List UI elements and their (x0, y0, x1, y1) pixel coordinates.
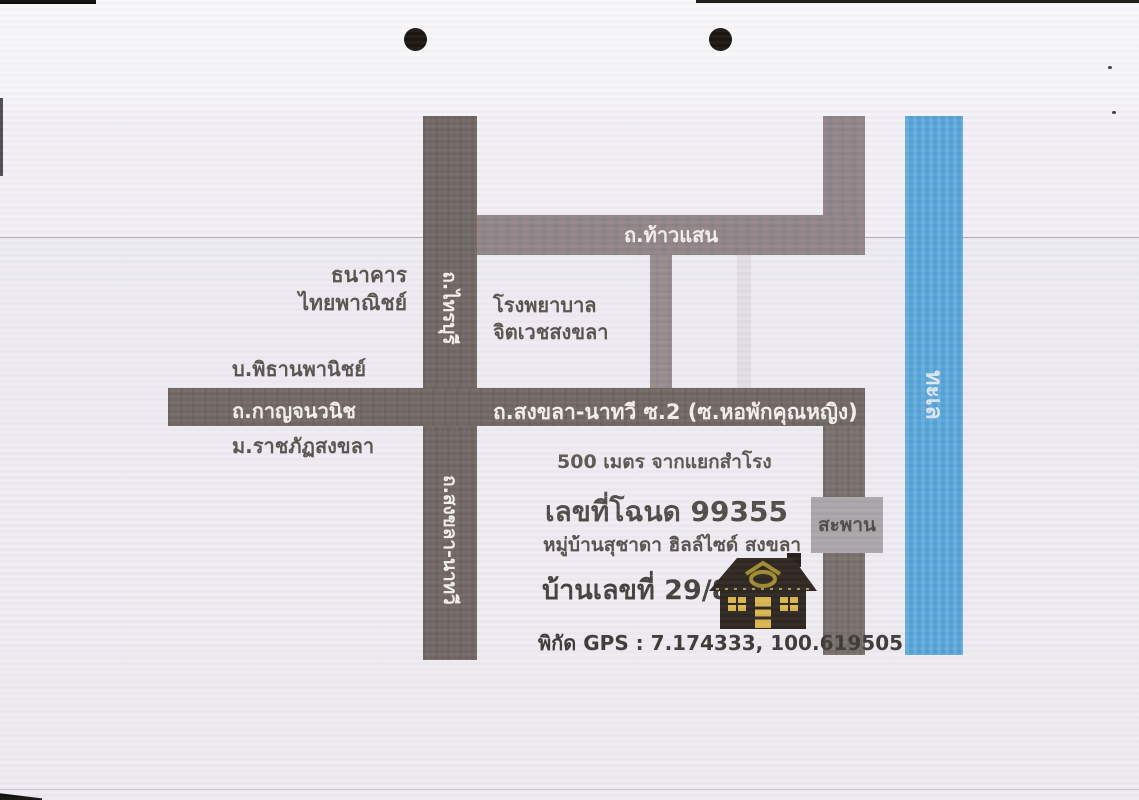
scan-edge-bar-right (696, 0, 1139, 3)
sea-label: ทะเล (916, 370, 952, 419)
hole-punch-dot (709, 28, 732, 51)
scan-speck (1112, 111, 1116, 114)
scan-edge-mark (0, 98, 3, 176)
scan-edge-bar-left (0, 0, 96, 4)
road-songkhla-nathawi-vertical-label-wrap: ถ.สงขลา-นาทวี (423, 420, 477, 660)
sea-label-wrap: ทะเล (905, 310, 963, 480)
bank-label-line1: ธนาคาร (270, 261, 407, 289)
hospital-label: โรงพยาบาล จิตเวชสงขลา (493, 292, 608, 346)
distance-note: 500 เมตร จากแยกสำโรง (557, 450, 772, 475)
road-kanchanavanich-label: ถ.กาญจนวนิช (232, 395, 356, 427)
hospital-label-line2: จิตเวชสงขลา (493, 319, 608, 346)
university-label: ม.ราชภัฏสงขลา (232, 433, 374, 460)
scan-speck (1108, 66, 1112, 69)
fold-line (0, 789, 1139, 790)
road-saiburi-label-wrap: ถ.ไทรบุรี (423, 248, 477, 368)
hospital-label-line1: โรงพยาบาล (493, 292, 608, 319)
road-songkhla-nathawi-soi2-label: ถ.สงขลา-นาทวี ซ.2 (ซ.หอพักคุณหญิง) (493, 396, 858, 429)
road-thaosaen-label: ถ.ท้าวแสน (624, 219, 718, 251)
road-saiburi-label: ถ.ไทรบุรี (435, 271, 465, 344)
bank-label: ธนาคาร ไทยพาณิชย์ (270, 261, 407, 317)
road-thaosaen-label-wrap: ถ.ท้าวแสน (477, 215, 865, 255)
scan-corner-artifact (0, 792, 42, 800)
scanned-map-page: ทะเล ถ.ท้าวแสน ถ.ไทรบุรี ถ.สงขลา-นาทวี ถ… (0, 0, 1139, 800)
road-topright-vertical (823, 116, 865, 216)
house-icon (708, 552, 818, 632)
deed-number: เลขที่โฉนด 99355 (545, 493, 788, 531)
hole-punch-dot (404, 28, 427, 51)
bridge-box: สะพาน (811, 497, 883, 553)
bridge-label: สะพาน (818, 510, 876, 540)
road-songkhla-nathawi-vertical-label: ถ.สงขลา-นาทวี (435, 475, 465, 605)
scan-streak (737, 255, 751, 388)
bank-label-line2: ไทยพาณิชย์ (270, 289, 407, 317)
company-label: บ.พิธานพานิชย์ (232, 356, 366, 383)
road-connector-vertical (650, 255, 672, 389)
gps-coordinates: พิกัด GPS : 7.174333, 100.619505 (538, 630, 903, 657)
